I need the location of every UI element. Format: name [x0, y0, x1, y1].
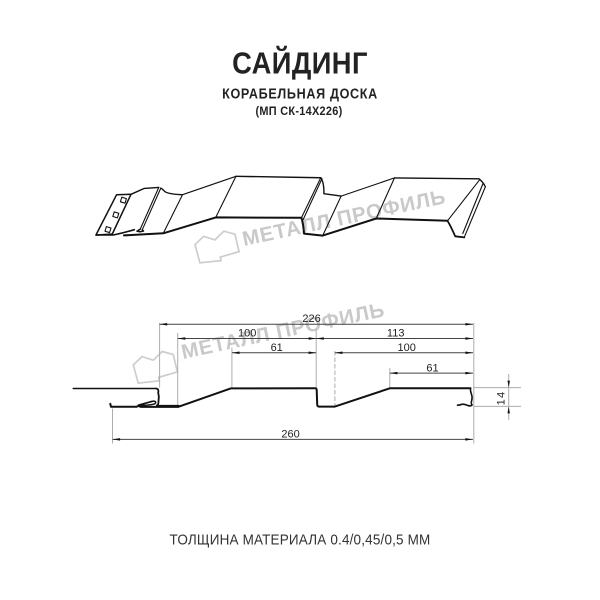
svg-text:14: 14 — [496, 391, 508, 406]
svg-text:61: 61 — [271, 342, 283, 354]
svg-text:61: 61 — [426, 362, 438, 374]
svg-text:260: 260 — [281, 428, 299, 440]
svg-text:113: 113 — [387, 328, 405, 340]
svg-text:100: 100 — [238, 328, 256, 340]
svg-text:100: 100 — [398, 342, 416, 354]
svg-text:ТОЛЩИНА МАТЕРИАЛА 0.4/0,45/0,5: ТОЛЩИНА МАТЕРИАЛА 0.4/0,45/0,5 ММ — [170, 532, 431, 549]
svg-text:САЙДИНГ: САЙДИНГ — [232, 45, 368, 81]
svg-text:КОРАБЕЛЬНАЯ ДОСКА: КОРАБЕЛЬНАЯ ДОСКА — [222, 86, 378, 102]
svg-text:(МП СК-14Х226): (МП СК-14Х226) — [255, 106, 342, 118]
svg-text:226: 226 — [302, 313, 320, 325]
